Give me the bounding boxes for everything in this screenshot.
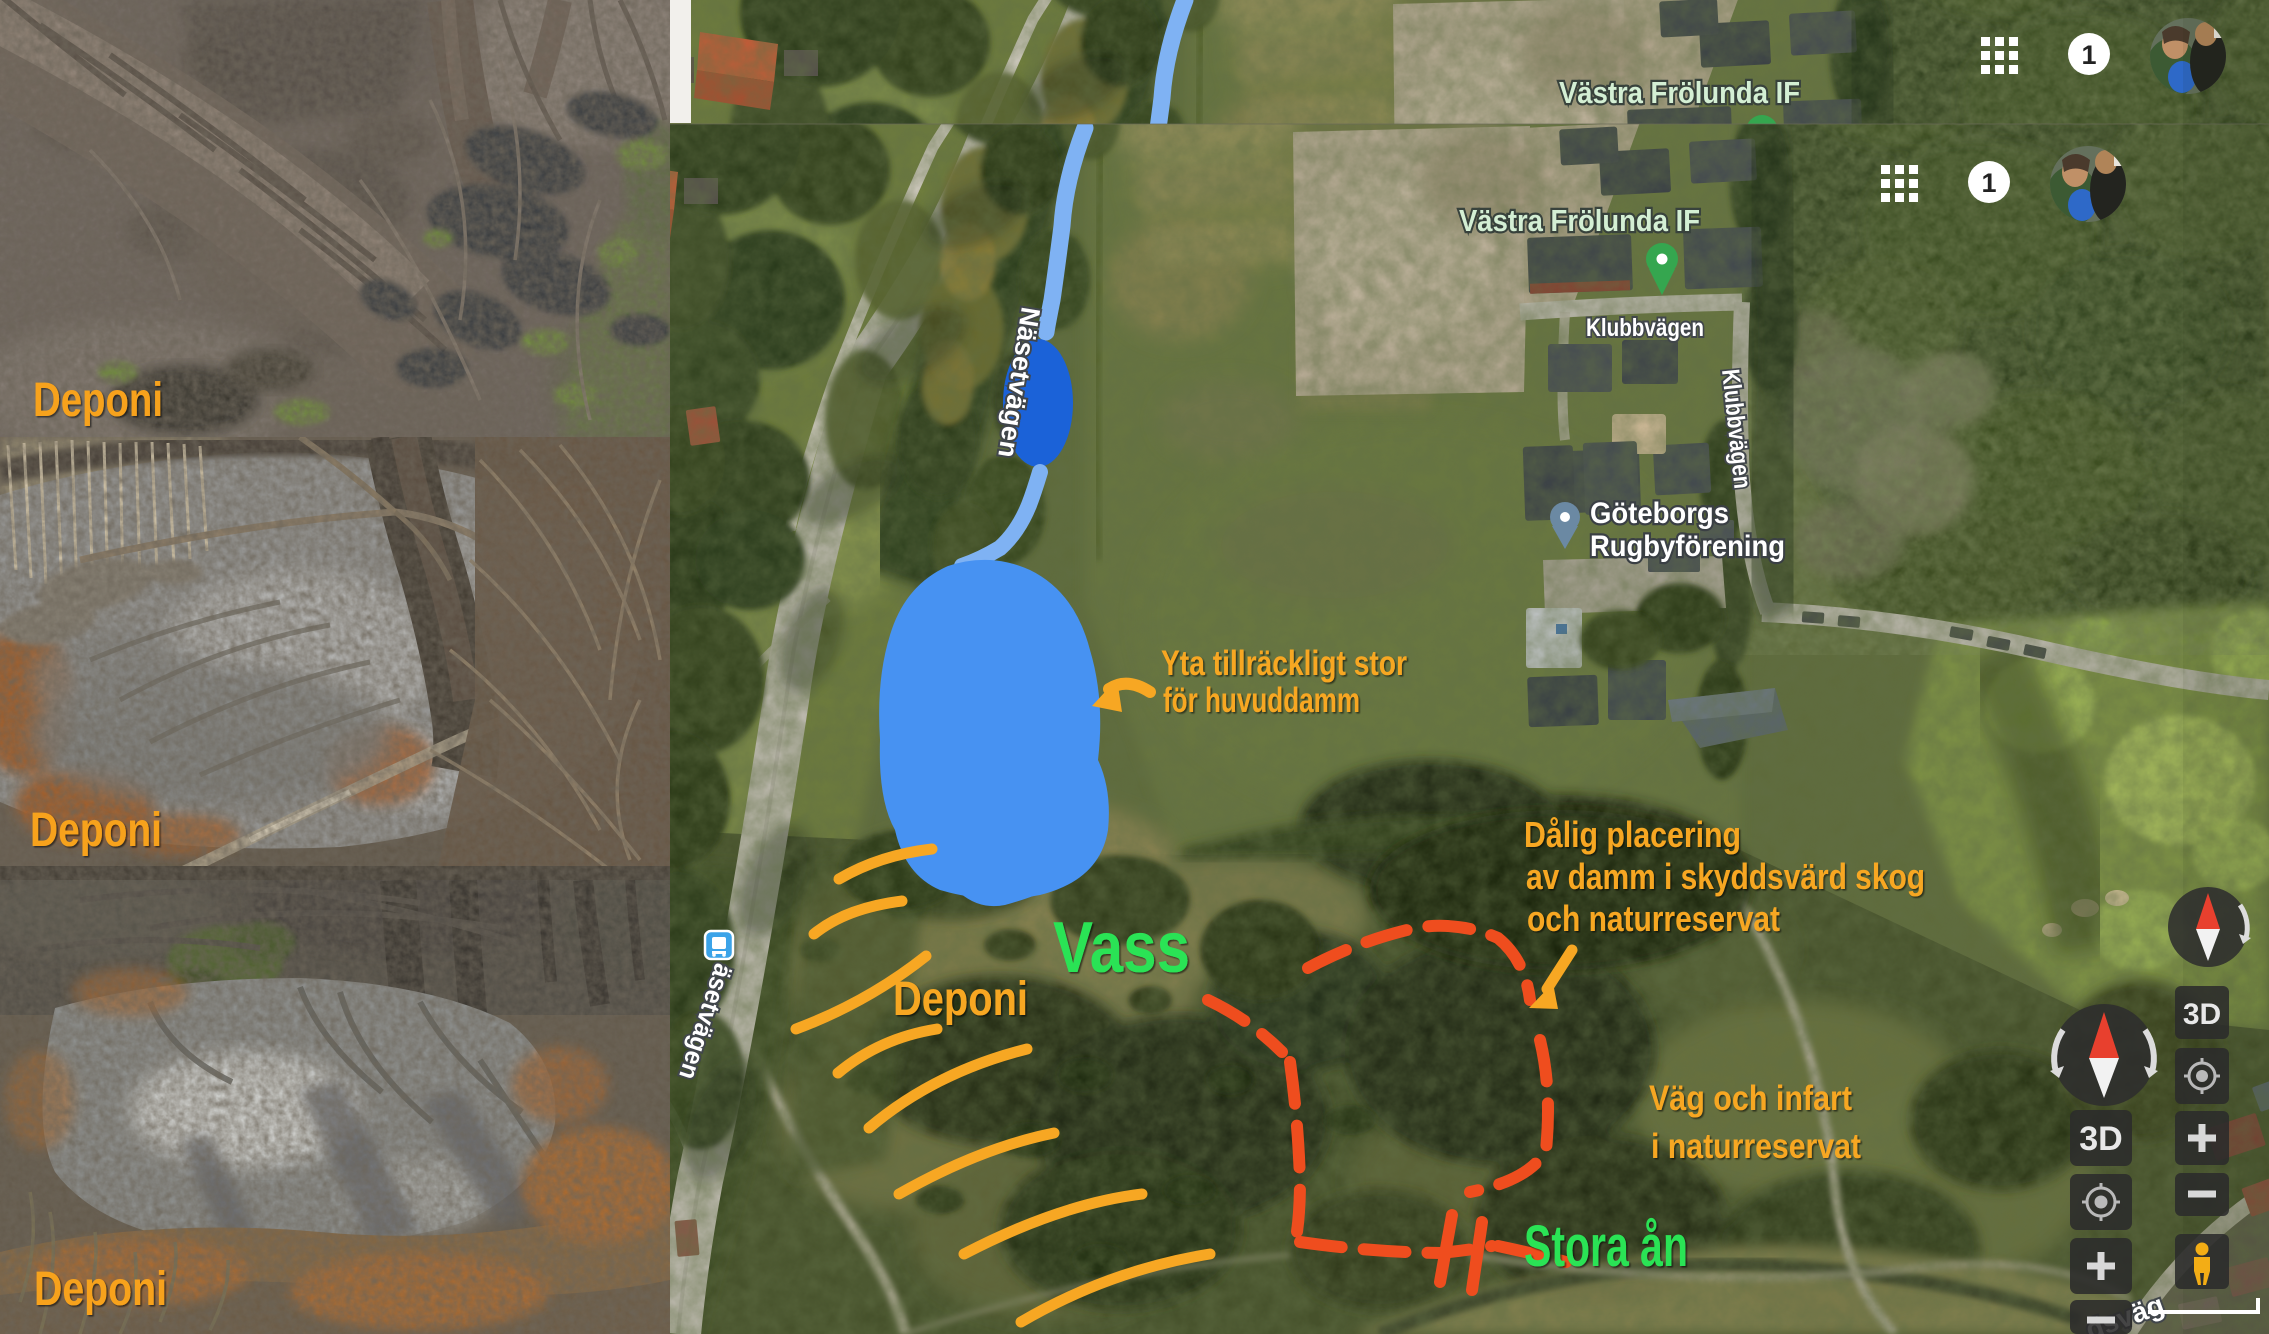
svg-text:Klubbvägen: Klubbvägen bbox=[1586, 314, 1704, 342]
svg-text:Rugbyförening: Rugbyförening bbox=[1590, 530, 1785, 563]
svg-text:1: 1 bbox=[1981, 168, 1996, 198]
svg-text:Yta tillräckligt stor: Yta tillräckligt stor bbox=[1161, 644, 1407, 683]
svg-text:Väg och infart: Väg och infart bbox=[1649, 1079, 1852, 1118]
svg-text:Göteborgs: Göteborgs bbox=[1590, 497, 1729, 530]
svg-text:och naturreservat: och naturreservat bbox=[1527, 898, 1780, 939]
svg-text:Deponi: Deponi bbox=[893, 973, 1028, 1026]
svg-text:Dålig placering: Dålig placering bbox=[1524, 814, 1741, 855]
svg-text:Deponi: Deponi bbox=[30, 804, 162, 857]
svg-text:Deponi: Deponi bbox=[34, 1263, 167, 1316]
svg-text:Vass: Vass bbox=[1053, 908, 1190, 988]
svg-text:3D: 3D bbox=[2079, 1120, 2122, 1158]
svg-text:Stora ån: Stora ån bbox=[1524, 1214, 1688, 1279]
svg-text:för huvuddamm: för huvuddamm bbox=[1163, 681, 1360, 720]
svg-text:av damm i skyddsvärd skog: av damm i skyddsvärd skog bbox=[1526, 856, 1925, 897]
svg-text:Västra Frölunda IF: Västra Frölunda IF bbox=[1459, 203, 1700, 238]
svg-text:i naturreservat: i naturreservat bbox=[1651, 1127, 1861, 1166]
svg-text:Deponi: Deponi bbox=[33, 374, 163, 427]
svg-text:3D: 3D bbox=[2183, 998, 2221, 1031]
